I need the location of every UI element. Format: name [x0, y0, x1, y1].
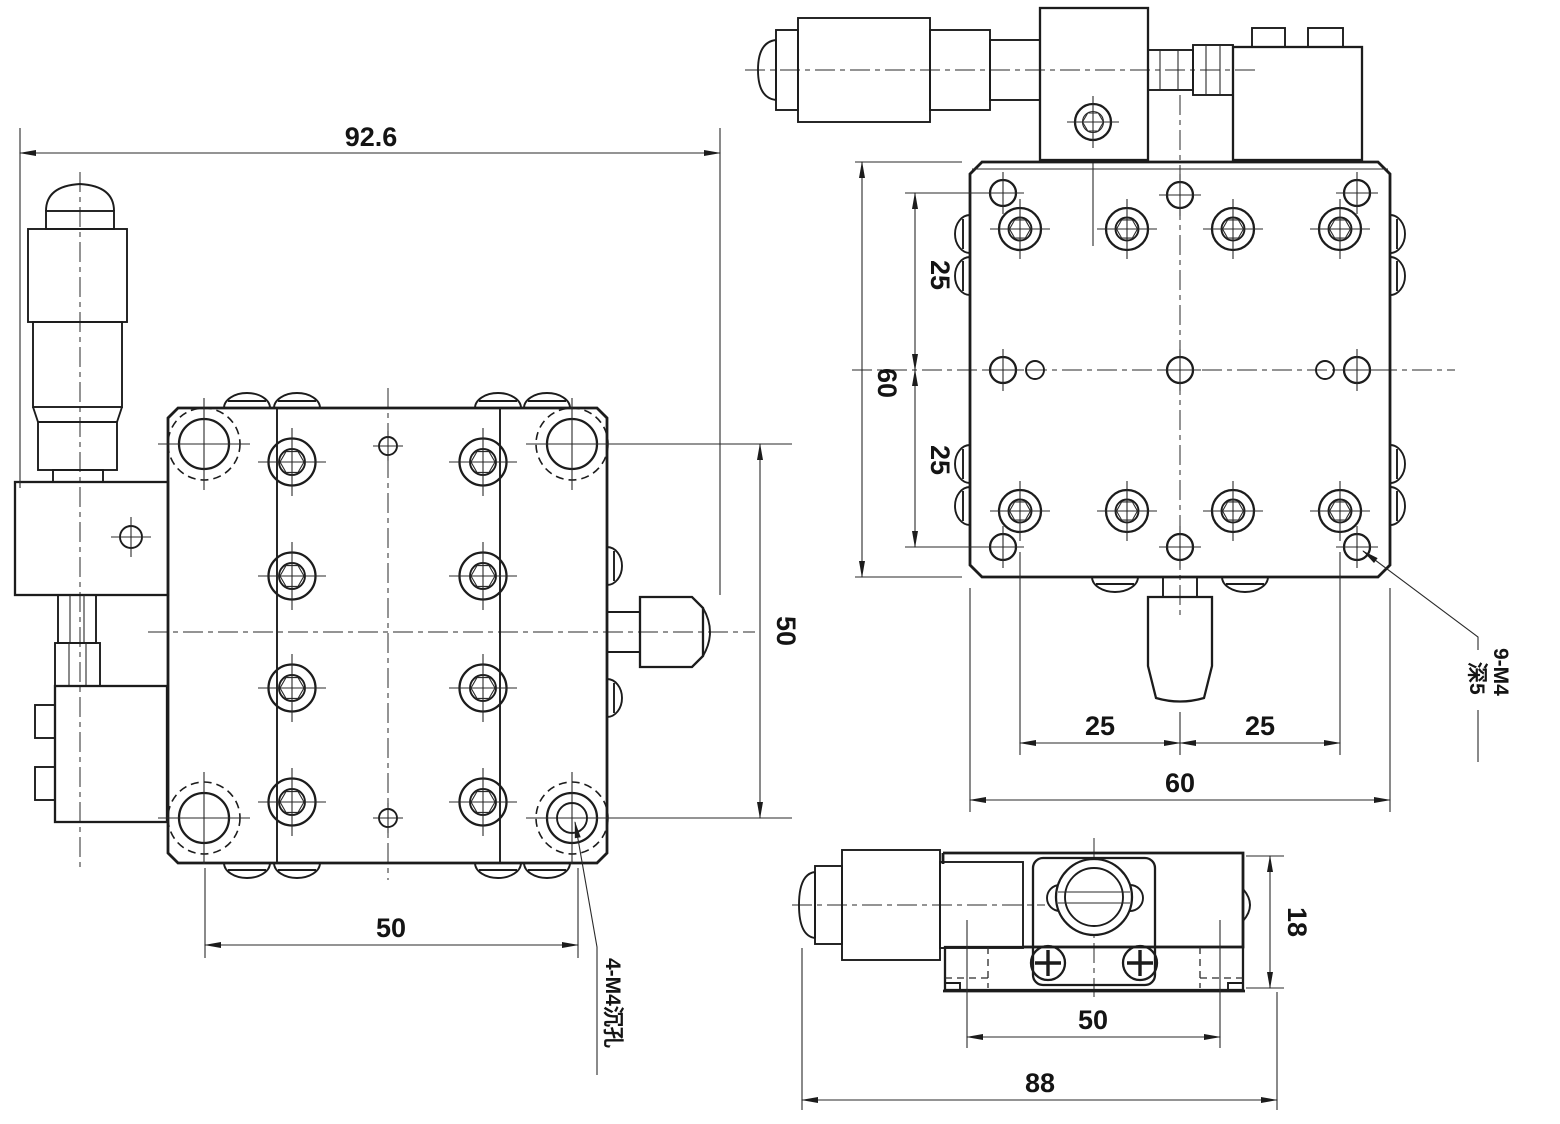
dim-text-top-row-lower: 25 [925, 445, 955, 475]
dim-text-side-height: 18 [1282, 907, 1312, 937]
dim-text-front-width: 92.6 [345, 122, 398, 152]
front-hex-nut [55, 643, 100, 686]
front-micrometer-bracket [15, 482, 168, 595]
top-micrometer [758, 8, 1362, 160]
side-phillips-screw-left [1031, 946, 1065, 980]
dim-text-side-length: 88 [1025, 1068, 1055, 1098]
side-view: 18 50 88 [792, 838, 1312, 1110]
side-bracket [1031, 858, 1157, 985]
annotation-counterbore: 4-M4沉孔 [601, 958, 624, 1048]
top-view: 60 25 25 25 25 60 9-M4 深5 [745, 8, 1512, 812]
dim-text-front-spacing-x: 50 [376, 913, 406, 943]
engineering-drawing: 92.6 50 50 4-M4沉孔 [0, 0, 1560, 1124]
annotation-tapped-line2: 深5 [1465, 662, 1488, 695]
dim-side-height: 18 [1246, 856, 1312, 988]
dim-text-top-col-right: 25 [1245, 711, 1275, 741]
front-drive-block [55, 686, 167, 822]
side-phillips-screw-right [1123, 946, 1157, 980]
leader-tapped-holes: 9-M4 深5 [1363, 551, 1512, 762]
dim-side-length: 88 [802, 948, 1277, 1110]
top-drive-block [1233, 47, 1362, 160]
side-thumbwheel [1056, 859, 1132, 935]
front-micrometer [15, 184, 168, 822]
front-view: 92.6 50 50 4-M4沉孔 [15, 122, 801, 1075]
annotation-tapped-line1: 9-M4 [1489, 648, 1512, 696]
dim-text-top-width: 60 [1165, 768, 1195, 798]
dim-top-plate-width: 60 [970, 588, 1390, 812]
dim-text-front-spacing-y: 50 [771, 616, 801, 646]
dim-text-top-row-upper: 25 [925, 260, 955, 290]
dim-text-top-height: 60 [872, 368, 902, 398]
dim-front-hole-spacing-x: 50 [205, 868, 578, 958]
dim-front-width: 92.6 [20, 122, 720, 595]
top-micrometer-bracket [1040, 8, 1148, 160]
dim-text-side-spacing: 50 [1078, 1005, 1108, 1035]
drawing-canvas: 92.6 50 50 4-M4沉孔 [0, 0, 1560, 1124]
dim-top-col-offsets: 25 25 [1020, 552, 1340, 755]
dim-text-top-col-left: 25 [1085, 711, 1115, 741]
